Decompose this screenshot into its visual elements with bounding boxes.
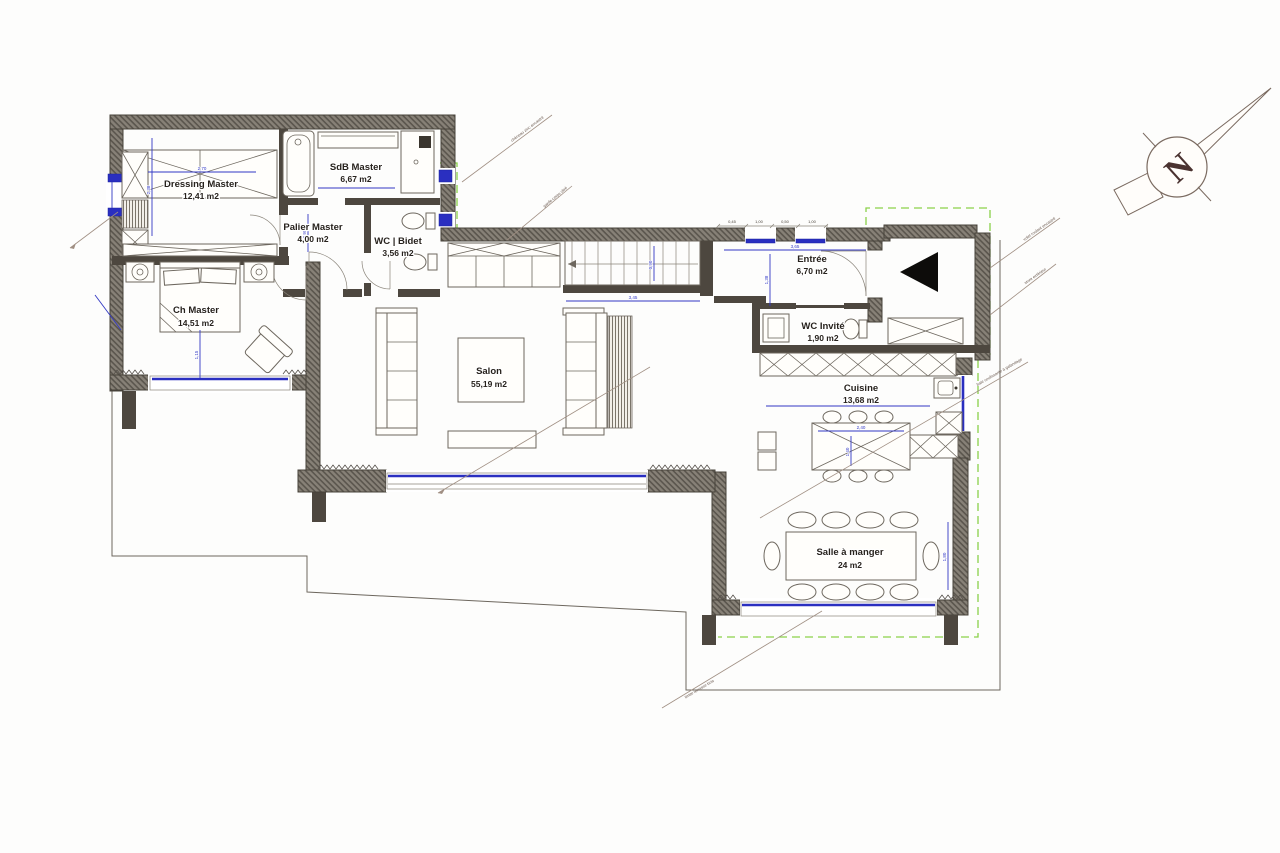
armchair (241, 324, 293, 376)
dim-dressing-w: 2,70 (198, 166, 207, 171)
label-wc-bidet-area: 3,56 m2 (382, 248, 413, 258)
label-palier-area: 4,00 m2 (297, 234, 328, 244)
label-entree-area: 6,70 m2 (796, 266, 827, 276)
label-salon-name: Salon (476, 366, 502, 377)
bathtub (283, 131, 314, 196)
stairs: 0,90 (565, 241, 700, 285)
wc-master (402, 213, 435, 229)
north-arrow: N (1114, 88, 1271, 215)
porch-closet (888, 318, 963, 344)
dim-tc3: 0,50 (781, 219, 790, 224)
dim-tc2: 1,00 (755, 219, 764, 224)
annotation-store: store extérieur (1023, 266, 1047, 285)
kitchen-island (812, 411, 910, 482)
vanity-counter (318, 132, 398, 148)
dim-tc4: 1,00 (808, 219, 817, 224)
label-wc-invite-area: 1,90 m2 (807, 333, 838, 343)
label-dressing-area: 12,41 m2 (183, 191, 219, 201)
label-sam-name: Salle à manger (816, 547, 883, 558)
label-cuisine-name: Cuisine (844, 383, 878, 394)
entrance-arrow (900, 252, 938, 292)
kitchen-sink (934, 378, 960, 398)
label-sam-area: 24 m2 (838, 560, 862, 570)
dim-stairs: 3,45 (629, 295, 638, 300)
label-ch-name: Ch Master (173, 305, 219, 316)
label-salon-area: 55,19 m2 (471, 379, 507, 389)
annotation-volet: volet roulant encastré (1022, 215, 1057, 241)
label-dressing-name: Dressing Master (164, 179, 238, 190)
dim-dressing-h: 2,38 (146, 185, 151, 194)
label-ch-area: 14,51 m2 (178, 318, 214, 328)
dim-dining: 1,80 (942, 552, 947, 561)
label-entree-name: Entrée (797, 254, 827, 265)
low-cabinet (448, 431, 536, 448)
annotation-terrasse: limite terrasse bois (684, 678, 715, 699)
dim-island-d: 1,40 (845, 447, 850, 456)
dim-island-w: 2,40 (857, 425, 866, 430)
dim-entree-v: 1,38 (764, 275, 769, 284)
entry-door (821, 251, 866, 296)
label-cuisine-area: 13,68 m2 (843, 395, 879, 405)
nightstand-right (244, 262, 274, 282)
nightstand-left (126, 262, 154, 282)
sofa-left (376, 308, 417, 435)
dim-tc1: 0,45 (728, 219, 737, 224)
label-sdb-name: SdB Master (330, 162, 383, 173)
label-sdb-area: 6,67 m2 (340, 174, 371, 184)
dim-ch: 1,15 (194, 350, 199, 359)
hall-closet (448, 243, 560, 287)
label-wc-invite-name: WC Invité (801, 321, 844, 332)
label-wc-bidet-name: WC | Bidet (374, 236, 422, 247)
floor-plan-canvas: 0,90 (0, 0, 1280, 853)
dim-stairs-v: 0,90 (648, 260, 653, 269)
dim-entree: 3,65 (791, 244, 800, 249)
annotation-garde-corps: garde-corps vitré (542, 185, 569, 209)
shower (401, 131, 434, 193)
floor-plan-drawing: 0,90 (0, 0, 1280, 853)
annotation-cheneau: chéneau zinc encastré (510, 114, 546, 143)
label-palier-name: Palier Master (283, 222, 342, 233)
kitchen-tall-units (760, 353, 956, 376)
media-rug (608, 316, 632, 428)
sofa-right (563, 308, 607, 435)
